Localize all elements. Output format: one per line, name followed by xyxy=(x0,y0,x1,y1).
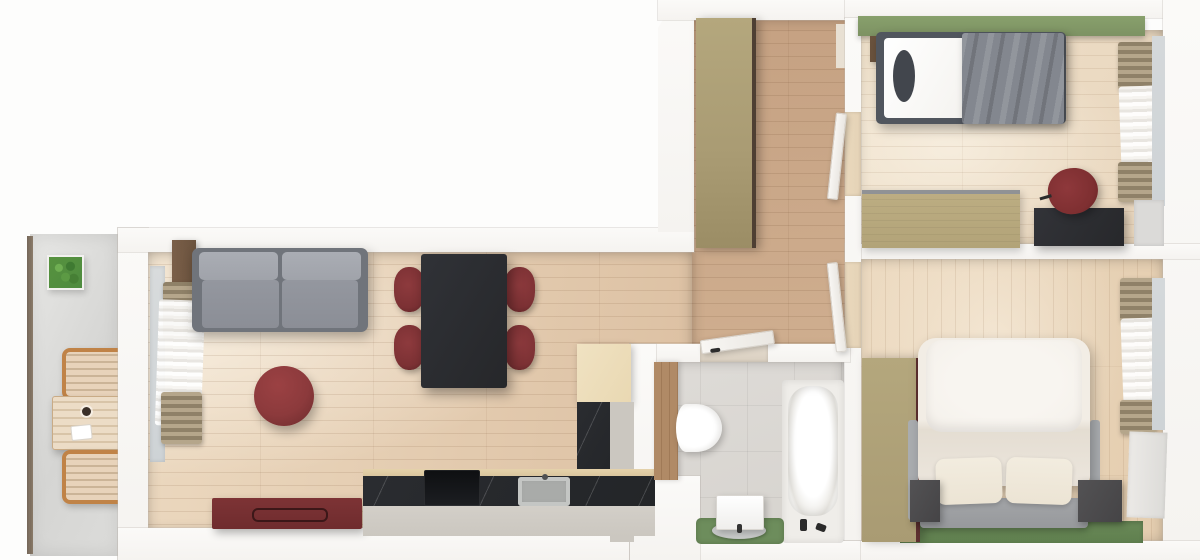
dining-chair-bottom-right xyxy=(504,325,535,370)
bedroom1-radiator xyxy=(1134,200,1164,246)
threshold-bedroom-1 xyxy=(845,112,861,196)
sideboard xyxy=(212,498,362,529)
cooktop xyxy=(424,470,480,506)
wall-hallway-left xyxy=(658,0,694,232)
potted-plant xyxy=(47,255,84,290)
table-book xyxy=(70,424,92,441)
table-bottle xyxy=(82,407,91,416)
nightstand-right xyxy=(1078,480,1122,522)
kitchen-tall-cabinet xyxy=(577,344,631,404)
patio-chair-bottom xyxy=(62,450,126,504)
desk xyxy=(1034,208,1124,246)
bedroom1-dresser-bench xyxy=(862,190,1020,248)
sofa-seat-cushions xyxy=(202,280,358,328)
patio-table xyxy=(52,396,122,450)
patio-chair-top xyxy=(62,348,126,400)
bedroom1-curtain-bottom xyxy=(1118,162,1156,202)
living-curtain-bottom xyxy=(161,392,202,444)
double-bed-pillow-right xyxy=(1005,457,1073,505)
bedroom2-curtain-top xyxy=(1120,278,1156,322)
bedroom2-curtain-bottom xyxy=(1120,400,1156,434)
sofa-back-cushions xyxy=(199,252,361,280)
bathroom-wood-panel xyxy=(654,362,678,480)
hallway-wardrobe xyxy=(696,18,756,248)
wall-bedrooms-bottom xyxy=(845,541,1200,560)
kitchen-counter xyxy=(363,476,655,508)
nightstand-left xyxy=(910,480,940,522)
round-pouf xyxy=(254,366,314,426)
bedroom1-curtain-top xyxy=(1118,42,1156,90)
threshold-bedroom-2 xyxy=(845,262,861,348)
bedroom2-window-glass xyxy=(1152,278,1165,430)
single-bed-blanket xyxy=(962,33,1064,124)
washbasin-cabinet xyxy=(716,495,764,530)
dining-table xyxy=(421,254,507,388)
dining-chair-top-right xyxy=(504,267,535,312)
washbasin-faucet xyxy=(737,524,742,533)
bathtub-faucet xyxy=(800,519,807,531)
bathtub xyxy=(788,386,838,516)
double-bed-pillow-left xyxy=(935,457,1003,505)
double-bed-top-pillow xyxy=(926,340,1082,432)
sofa xyxy=(192,248,368,332)
kitchen-faucet xyxy=(542,474,548,480)
kitchen-base-cabinet xyxy=(363,506,655,536)
bedroom1-window-glass xyxy=(1152,36,1165,206)
wall-living-left xyxy=(118,228,148,560)
kitchen-sink xyxy=(518,477,570,506)
single-bed-pillow xyxy=(893,50,915,102)
sideboard-handle xyxy=(252,508,328,522)
wall-bedrooms-right xyxy=(1163,0,1200,552)
floor-plan-canvas xyxy=(0,0,1200,560)
bedroom2-radiator xyxy=(1127,431,1168,518)
wall-hallway-top xyxy=(658,0,858,20)
balcony-railing xyxy=(27,236,33,554)
